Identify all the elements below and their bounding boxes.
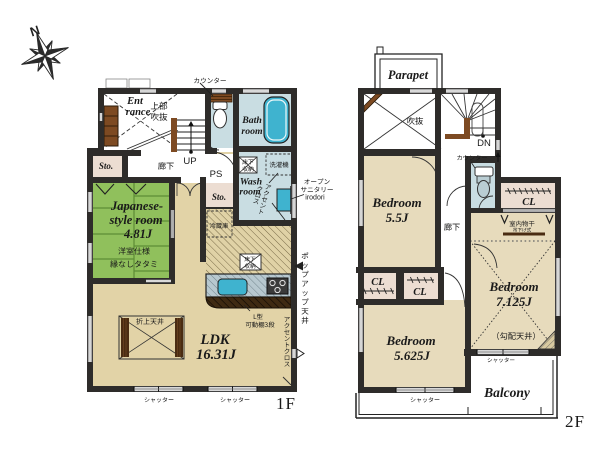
svg-text:LDK: LDK [200, 332, 231, 348]
svg-text:UP: UP [183, 156, 196, 167]
svg-text:CL: CL [522, 197, 535, 208]
svg-text:16.31J: 16.31J [196, 347, 237, 363]
svg-text:Sto.: Sto. [99, 161, 113, 171]
svg-text:1F: 1F [276, 394, 296, 413]
svg-text:Bedroom: Bedroom [371, 195, 421, 210]
svg-text:Ent: Ent [126, 96, 144, 107]
svg-text:PS: PS [210, 169, 223, 180]
svg-text:2F: 2F [565, 412, 585, 431]
svg-text:CL: CL [371, 277, 384, 288]
svg-text:4.81J: 4.81J [123, 227, 153, 241]
svg-text:Sto.: Sto. [212, 192, 226, 202]
svg-text:Japanese-: Japanese- [110, 199, 163, 213]
svg-text:Balcony: Balcony [483, 385, 531, 400]
svg-text:Bedroom: Bedroom [488, 279, 538, 294]
svg-text:style room: style room [108, 213, 162, 227]
svg-text:5.625J: 5.625J [394, 348, 430, 363]
svg-text:DN: DN [477, 138, 491, 149]
svg-text:5.5J: 5.5J [386, 210, 409, 225]
svg-text:CL: CL [413, 287, 426, 298]
svg-text:Parapet: Parapet [388, 68, 429, 82]
svg-text:rance: rance [126, 107, 151, 118]
svg-text:room: room [241, 126, 263, 137]
svg-text:irodori: irodori [305, 195, 325, 202]
svg-text:Bath: Bath [241, 115, 262, 126]
svg-text:Bedroom: Bedroom [385, 333, 435, 348]
svg-text:7.125J: 7.125J [496, 294, 532, 309]
